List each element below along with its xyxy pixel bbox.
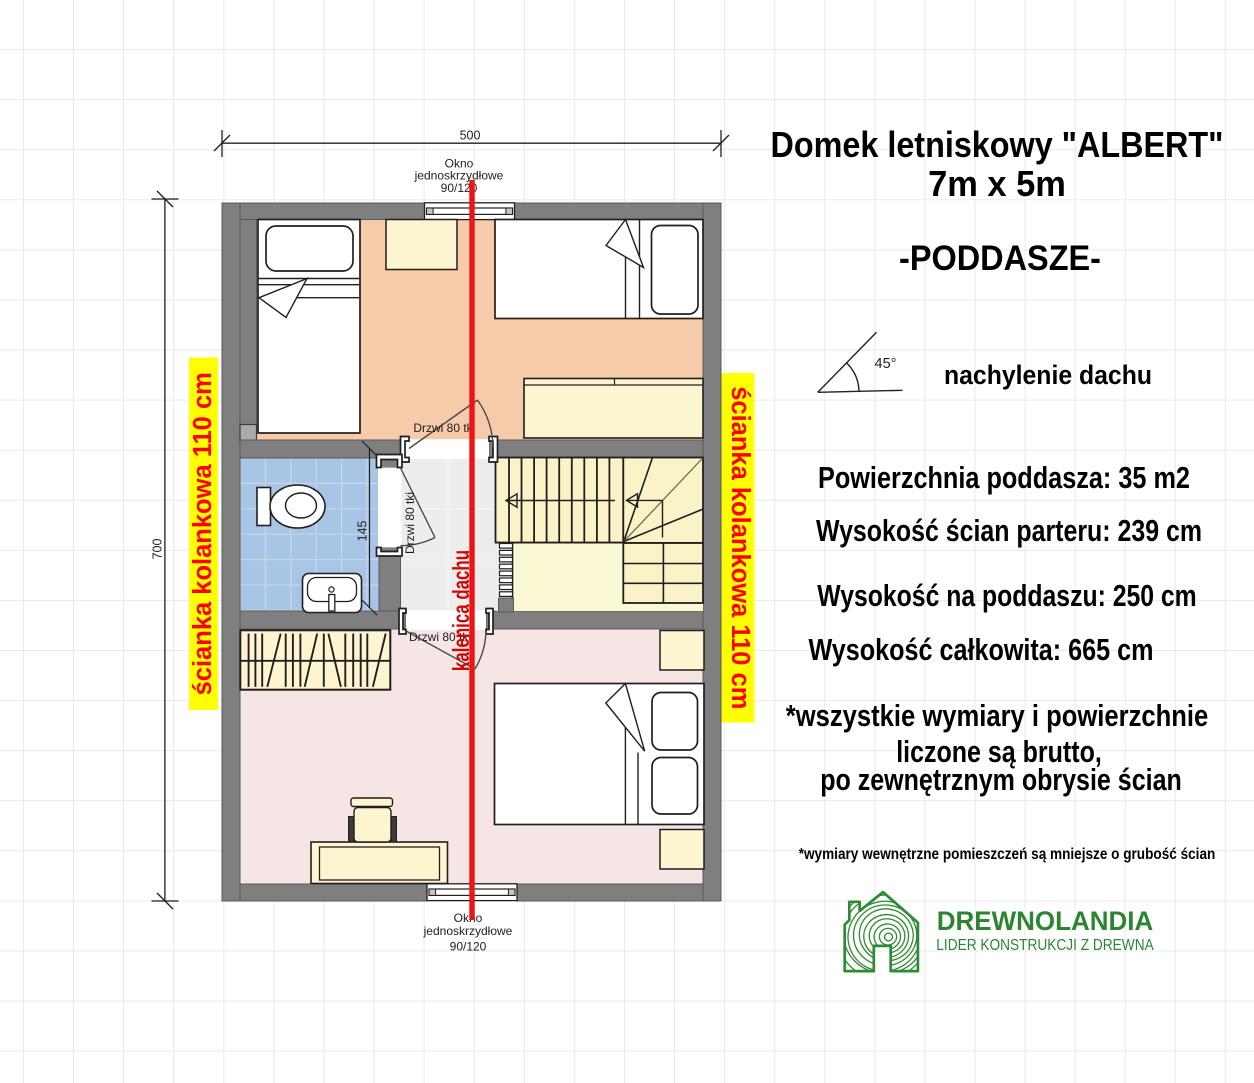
svg-text:500: 500	[460, 129, 481, 143]
svg-text:90/120: 90/120	[450, 940, 487, 954]
svg-text:45°: 45°	[875, 356, 897, 372]
svg-text:ścianka kolankowa 110 cm: ścianka kolankowa 110 cm	[726, 386, 754, 709]
svg-text:Drzwi 80 tki: Drzwi 80 tki	[403, 492, 417, 554]
svg-text:700: 700	[151, 539, 165, 560]
svg-text:145: 145	[356, 521, 370, 542]
svg-text:ścianka kolankowa 110 cm: ścianka kolankowa 110 cm	[189, 372, 217, 695]
svg-text:Drzwi 80 tk: Drzwi 80 tk	[413, 421, 473, 435]
svg-text:jednoskrzydłowe: jednoskrzydłowe	[423, 924, 513, 938]
svg-text:Okno: Okno	[454, 911, 483, 925]
